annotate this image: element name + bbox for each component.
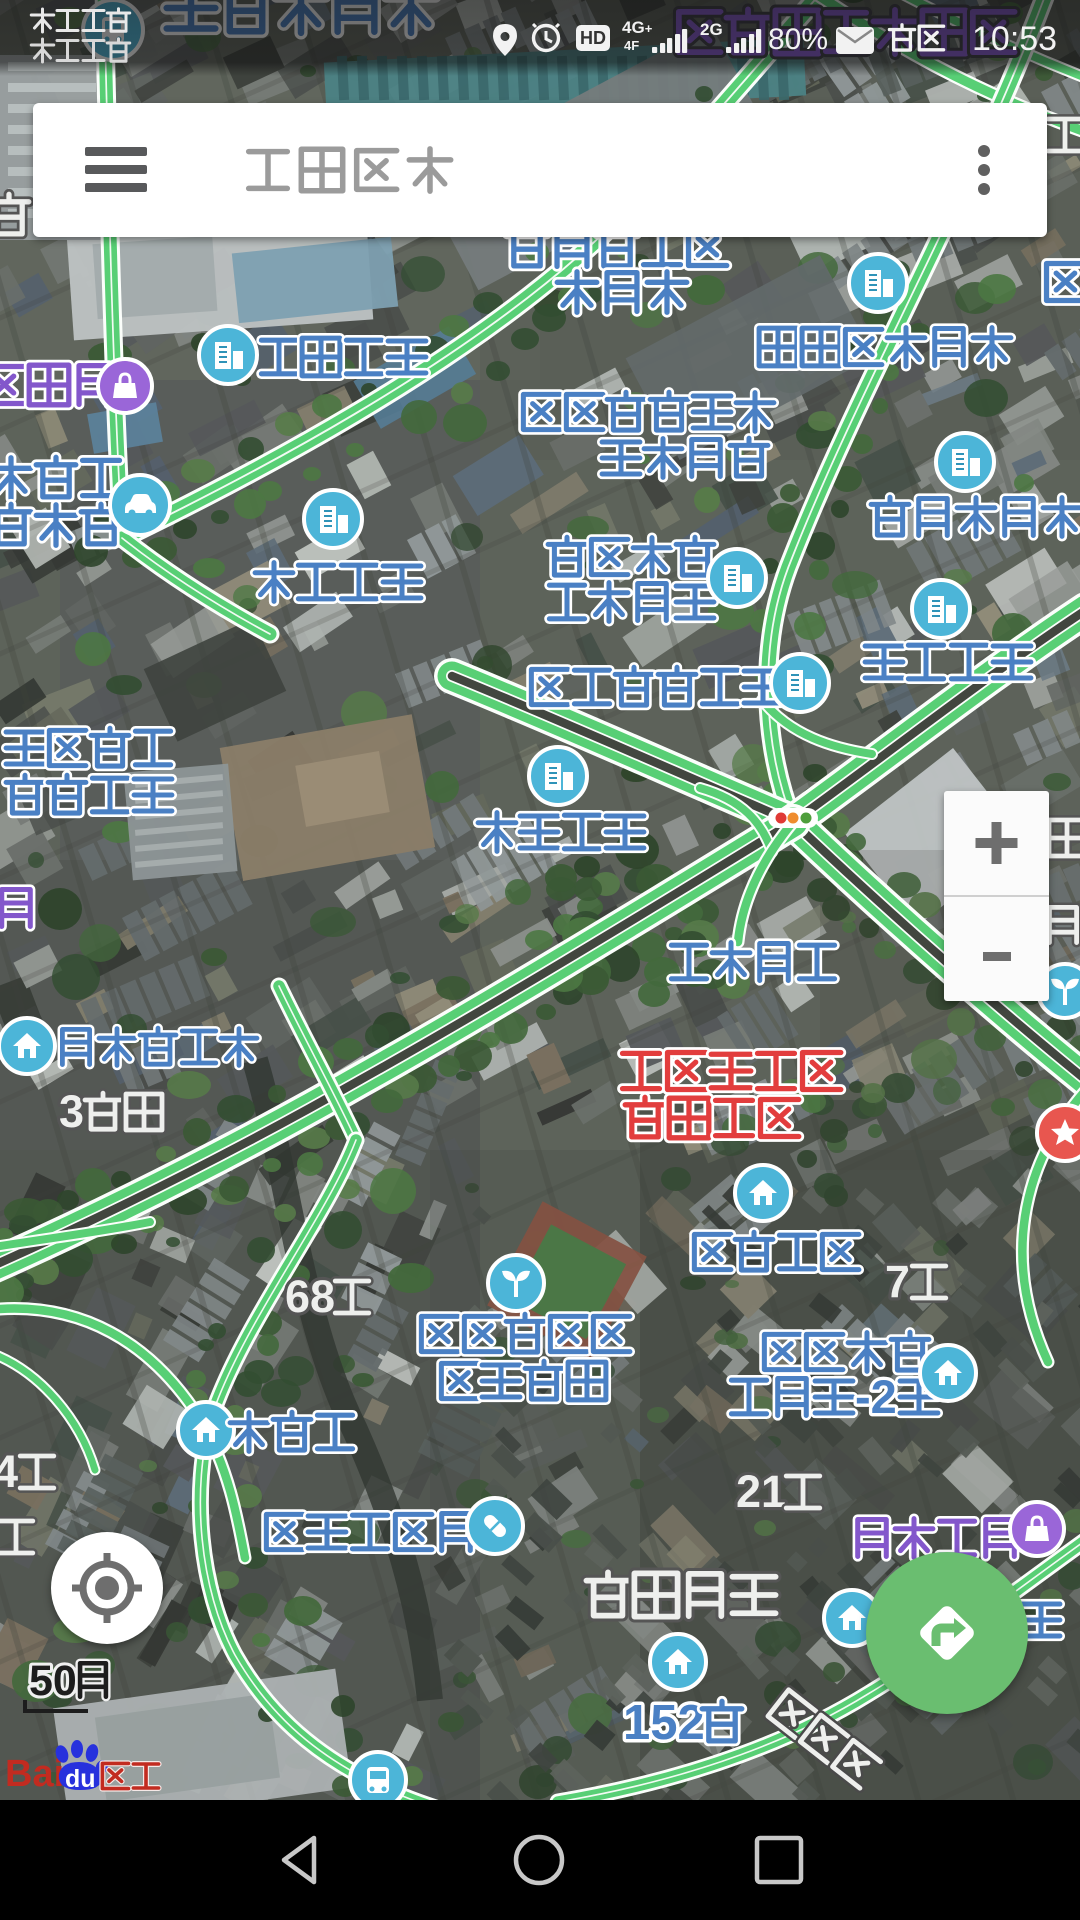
svg-text:4G+: 4G+: [622, 18, 653, 37]
svg-text:21: 21: [736, 1466, 786, 1517]
svg-text:2G: 2G: [700, 20, 723, 39]
svg-text:Bai: Bai: [5, 1753, 64, 1795]
svg-text:3: 3: [59, 1086, 84, 1137]
svg-text:68: 68: [285, 1271, 335, 1322]
svg-text:HD: HD: [580, 28, 606, 48]
svg-text:50: 50: [29, 1657, 77, 1705]
svg-text:152: 152: [623, 1696, 705, 1750]
svg-text:4F: 4F: [624, 38, 639, 53]
svg-text:80%: 80%: [768, 23, 828, 56]
svg-text:7: 7: [885, 1256, 910, 1307]
svg-text:10:53: 10:53: [972, 20, 1057, 58]
svg-text:-2: -2: [855, 1370, 897, 1423]
svg-text:du: du: [65, 1765, 96, 1793]
svg-text:4: 4: [0, 1446, 18, 1497]
